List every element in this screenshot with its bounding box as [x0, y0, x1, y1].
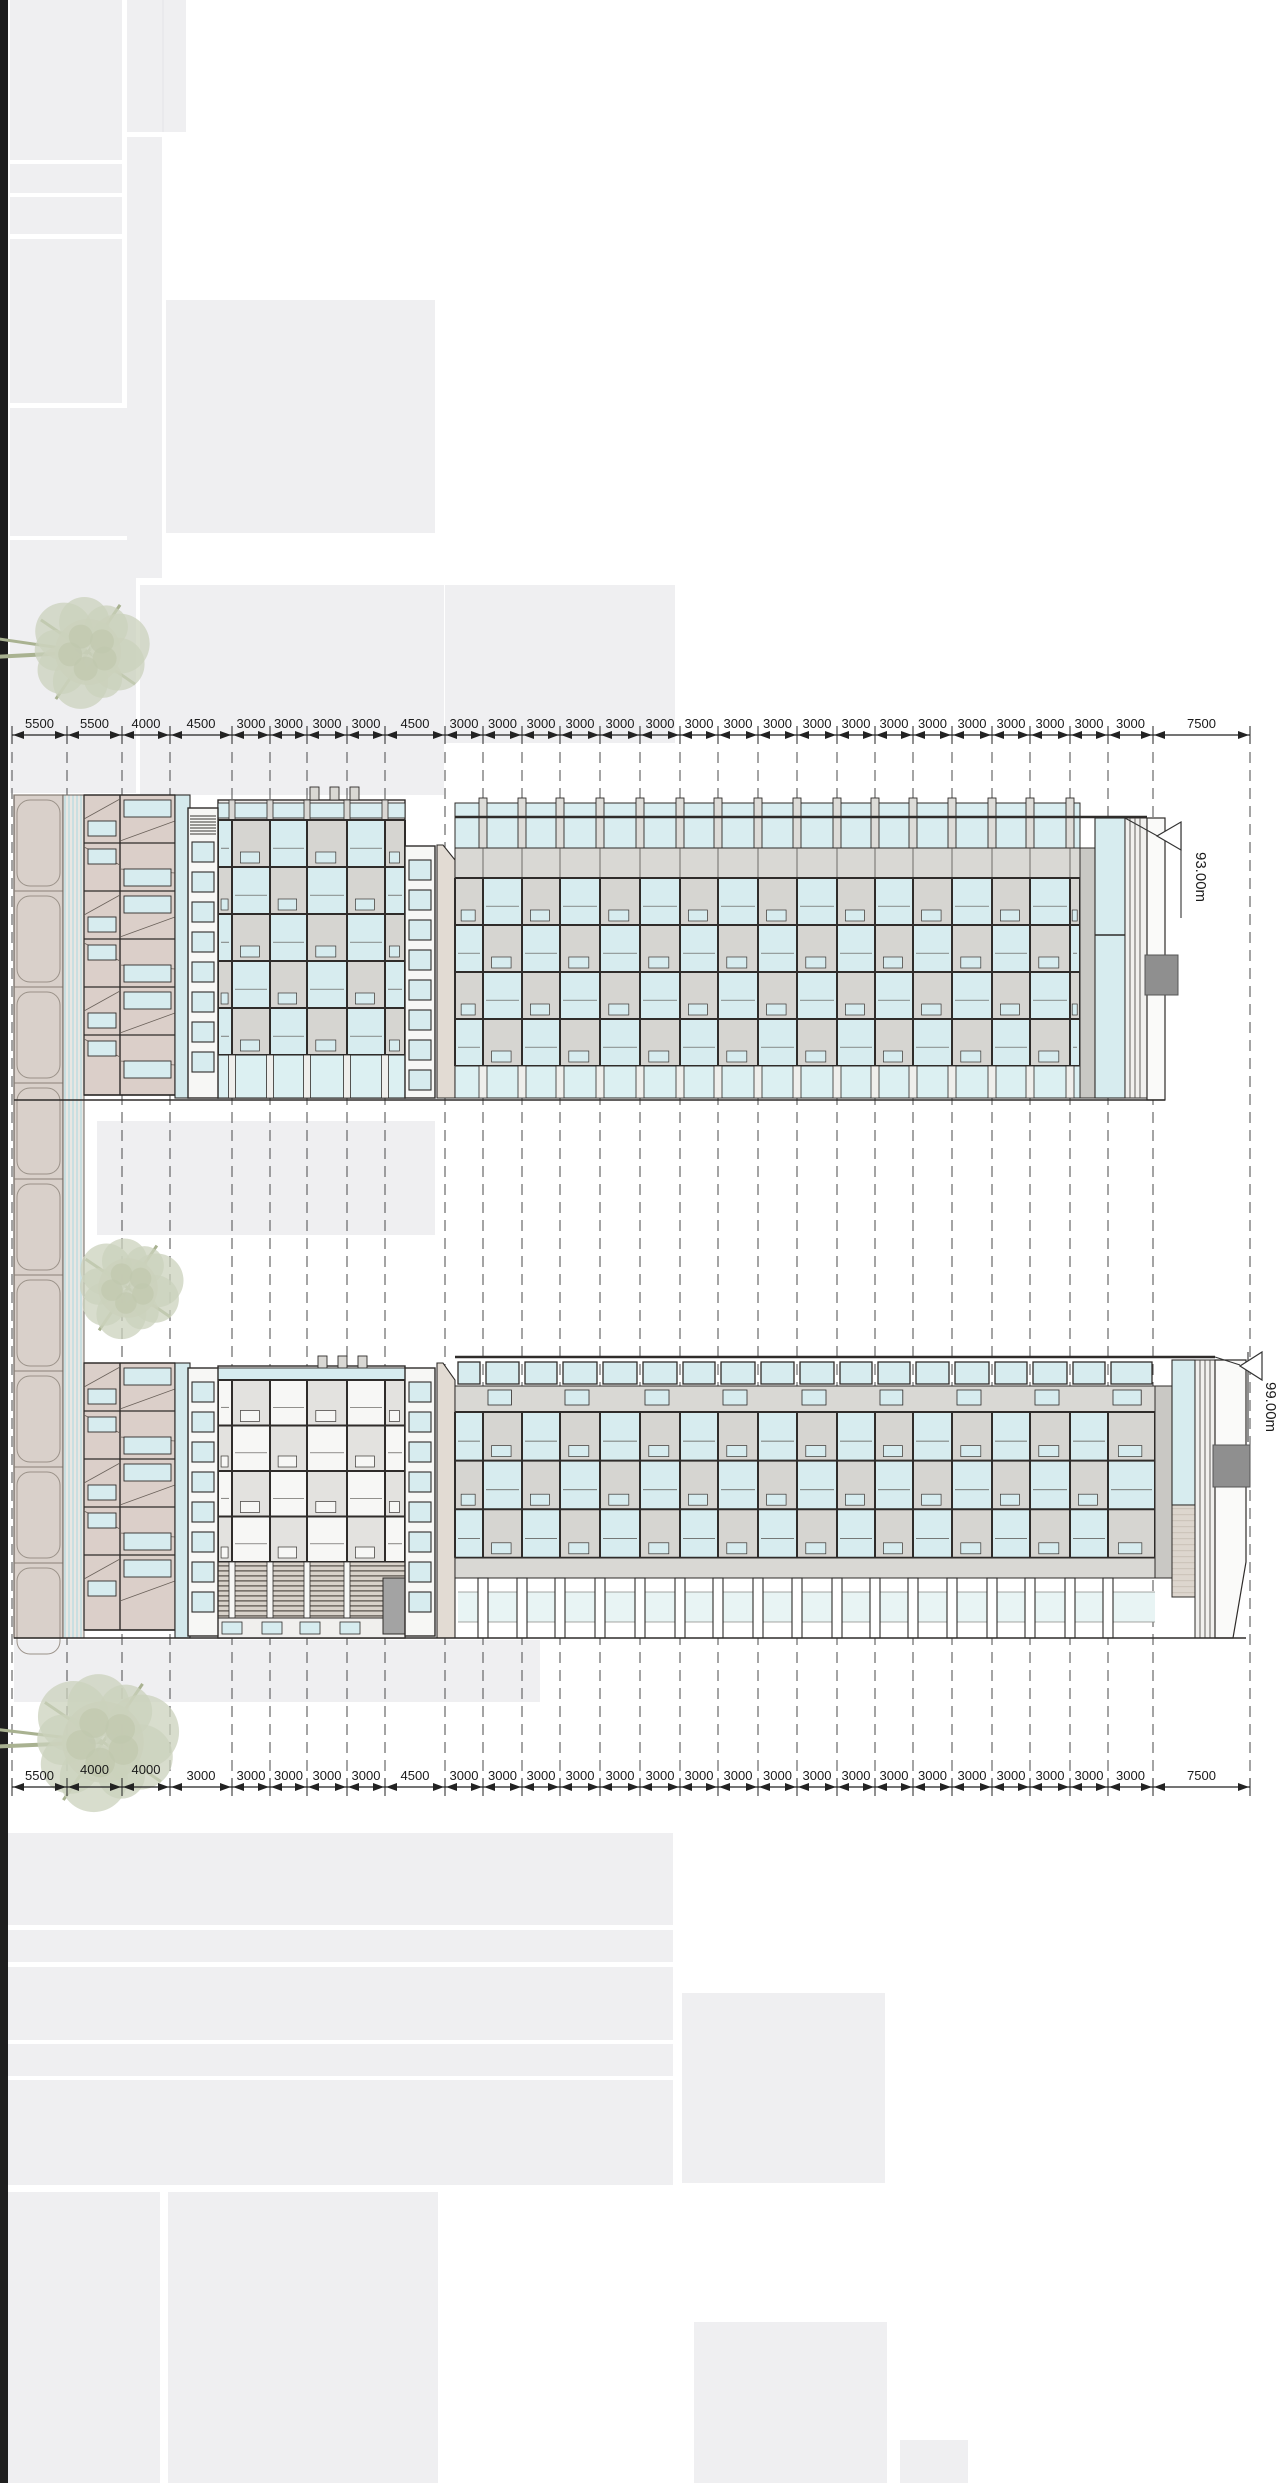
roof-fin — [1066, 798, 1074, 852]
context-block — [168, 2192, 438, 2483]
tree-canopy — [105, 1714, 135, 1744]
dimension-label: 3000 — [724, 716, 753, 731]
dimension-label: 3000 — [685, 1768, 714, 1783]
spandrel-window — [880, 1390, 903, 1405]
facade-cell — [680, 1509, 718, 1558]
facade-cell — [1030, 972, 1070, 1019]
facade-window — [316, 852, 336, 863]
facade-window — [1039, 1051, 1059, 1062]
facade-window — [530, 1494, 549, 1505]
roof-stub — [350, 787, 359, 800]
facade-cell — [218, 1008, 232, 1055]
facade-window — [806, 1446, 826, 1457]
dimension-label: 3000 — [724, 1768, 753, 1783]
facade-cell — [385, 1426, 405, 1472]
facade-cell — [992, 925, 1030, 972]
dimension-label: 3000 — [313, 716, 342, 731]
facade-window — [727, 1051, 747, 1062]
roof-stub — [338, 1356, 347, 1369]
facade-cell — [347, 914, 385, 961]
facade-cell — [680, 1412, 718, 1461]
facade-window — [1078, 1494, 1097, 1505]
context-block — [8, 2080, 673, 2185]
facade-cell — [600, 1019, 640, 1066]
textured-panel-strip — [14, 795, 63, 1638]
facade-cell — [560, 1461, 600, 1510]
roof-fin — [596, 798, 604, 852]
roof-stub — [330, 787, 339, 800]
clerestory-band — [218, 1368, 405, 1380]
dimension-label: 3000 — [237, 716, 266, 731]
facade-window — [355, 1456, 374, 1467]
piloti — [1025, 1578, 1035, 1638]
dimension-label: 3000 — [450, 1768, 479, 1783]
oriel-window — [88, 1041, 116, 1056]
facade-window — [278, 899, 297, 910]
ground-pier — [833, 1066, 841, 1098]
dimension-label: 3000 — [958, 1768, 987, 1783]
dimension-label: 3000 — [1116, 1768, 1145, 1783]
facade-window — [316, 1411, 336, 1422]
facade-cell — [522, 1412, 560, 1461]
dimension-label: 4000 — [132, 716, 161, 731]
spandrel-band — [455, 848, 1080, 878]
facade-window — [922, 1494, 942, 1505]
dimension-label: 3000 — [527, 716, 556, 731]
ground-pier — [229, 1055, 236, 1098]
roof-glass-band — [455, 803, 1080, 848]
tower-window — [192, 1502, 214, 1522]
tower-window — [192, 1472, 214, 1492]
facade-window — [922, 1004, 942, 1015]
context-block — [900, 2440, 968, 2483]
dimension-label: 3000 — [763, 1768, 792, 1783]
roof-fin — [988, 798, 996, 852]
piloti — [870, 1578, 880, 1638]
tower-window — [192, 1412, 214, 1432]
piloti — [1103, 1578, 1113, 1638]
dimension-label: 3000 — [685, 716, 714, 731]
spandrel-window — [1035, 1390, 1059, 1405]
dimension-label: 3000 — [842, 1768, 871, 1783]
ground-pier — [793, 1066, 801, 1098]
dimension-label: 3000 — [488, 716, 517, 731]
ground-pier — [344, 1055, 351, 1098]
tower-window — [192, 902, 214, 922]
clerestory-cell — [761, 1362, 794, 1384]
facade-cell — [1108, 1461, 1155, 1510]
clerestory-cell — [1033, 1362, 1067, 1384]
piloti — [555, 1578, 565, 1638]
tree-canopy — [90, 629, 114, 653]
facade-cell — [952, 972, 992, 1019]
roof-fin — [948, 798, 956, 852]
facade-cell — [758, 1509, 797, 1558]
facade-cell — [600, 925, 640, 972]
clerestory-cell — [1073, 1362, 1105, 1384]
spandrel-window — [802, 1390, 826, 1405]
oriel-window — [88, 1581, 116, 1596]
facade-cell — [640, 878, 680, 925]
oriel-window — [124, 869, 171, 886]
facade-cell — [758, 1412, 797, 1461]
piloti — [987, 1578, 997, 1638]
context-block — [127, 0, 186, 132]
ground-pier — [1066, 1066, 1074, 1098]
oriel-window — [124, 992, 171, 1009]
facade-window — [1118, 1446, 1142, 1457]
roof-fin — [1026, 798, 1034, 852]
facade-window — [355, 899, 374, 910]
roof-fin — [676, 798, 684, 852]
ground-pier — [479, 1066, 487, 1098]
clerestory-cell — [683, 1362, 715, 1384]
facade-window — [389, 1040, 399, 1051]
clerestory-cell — [916, 1362, 949, 1384]
ground-glazing — [455, 1066, 1080, 1098]
tower-window — [409, 1010, 431, 1030]
dimension-label: 3000 — [313, 1768, 342, 1783]
facade-window — [389, 1411, 399, 1422]
facade-cell — [307, 1517, 347, 1563]
ground-pier — [754, 1066, 762, 1098]
tree-canopy — [79, 1708, 109, 1738]
roof-fin — [636, 798, 644, 852]
spandrel-window — [957, 1390, 981, 1405]
clerestory-band — [218, 803, 405, 818]
ground-pier — [596, 1066, 604, 1098]
facade-cell — [1070, 1509, 1108, 1558]
ground-pier — [518, 1066, 526, 1098]
oriel-window — [88, 821, 116, 836]
roof-fin — [556, 798, 564, 852]
facade-cell — [875, 878, 913, 925]
parapet-fin — [229, 800, 235, 820]
facade-cell — [837, 1019, 875, 1066]
facade-cell — [455, 1412, 483, 1461]
facade-window — [355, 993, 374, 1004]
context-block — [10, 408, 136, 536]
dimension-label: 5500 — [25, 716, 54, 731]
roof-fin — [793, 798, 801, 852]
clerestory-cell — [486, 1362, 519, 1384]
tower-window — [192, 932, 214, 952]
dimension-label: 3000 — [566, 716, 595, 731]
facade-window — [845, 1004, 864, 1015]
oriel-window — [88, 849, 116, 864]
ground-pier — [676, 1066, 684, 1098]
facade-window — [649, 1446, 669, 1457]
facade-window — [649, 957, 669, 968]
piloti — [713, 1578, 723, 1638]
facade-window — [569, 1543, 589, 1554]
facade-cell — [218, 820, 232, 867]
facade-window — [806, 1543, 826, 1554]
oriel-window — [124, 1437, 171, 1454]
transfer-band — [455, 1558, 1155, 1578]
facade-window — [492, 1446, 512, 1457]
roof-fin — [754, 798, 762, 852]
facade-window — [1118, 1543, 1142, 1554]
facade-cell — [455, 1019, 483, 1066]
ground-pier — [304, 1055, 311, 1098]
facade-cell — [385, 1517, 405, 1563]
facade-cell — [270, 820, 307, 867]
facade-cell — [1030, 1461, 1070, 1510]
facade-window — [1000, 1494, 1019, 1505]
facade-cell — [718, 972, 758, 1019]
facade-window — [240, 1502, 259, 1513]
facade-window — [240, 1040, 259, 1051]
facade-window — [461, 1494, 475, 1505]
level-label-99: 99.00m — [1262, 1382, 1279, 1432]
roof-fin — [479, 798, 487, 852]
spandrel-window — [1113, 1390, 1141, 1405]
facade-cell — [797, 878, 837, 925]
roof-fin — [909, 798, 917, 852]
context-block — [10, 197, 122, 234]
dimension-label: 4000 — [132, 1762, 161, 1777]
facade-window — [727, 1446, 747, 1457]
ground-pier — [714, 1066, 722, 1098]
tower-window — [192, 842, 214, 862]
roof-fin — [833, 798, 841, 852]
clerestory-cell — [878, 1362, 910, 1384]
clerestory-cell — [840, 1362, 872, 1384]
lower-building-elevation — [14, 1356, 1250, 1638]
facade-window — [1000, 1004, 1019, 1015]
facade-cell — [218, 1471, 232, 1517]
facade-cell — [640, 1461, 680, 1510]
ground-pier — [948, 1066, 956, 1098]
parapet-fin — [267, 800, 273, 820]
tower-window — [409, 1442, 431, 1462]
ground-pier — [988, 1066, 996, 1098]
facade-cell — [483, 972, 522, 1019]
tower-window — [192, 1442, 214, 1462]
piloti — [478, 1578, 488, 1638]
facade-window — [609, 1004, 629, 1015]
facade-cell — [347, 1471, 385, 1517]
clerestory-cell — [995, 1362, 1027, 1384]
tower-window — [192, 1052, 214, 1072]
facade-cell — [385, 961, 405, 1008]
end-glazing — [1172, 1360, 1195, 1505]
context-block — [694, 2322, 887, 2483]
tower-window — [409, 980, 431, 1000]
facade-cell — [837, 925, 875, 972]
dimension-label: 3000 — [187, 1768, 216, 1783]
ground-pier — [267, 1055, 274, 1098]
facade-window — [688, 910, 707, 921]
spandrel-window — [723, 1390, 747, 1405]
context-block — [140, 585, 444, 795]
dimension-label: 3000 — [997, 716, 1026, 731]
piloti — [832, 1578, 842, 1638]
base-window — [340, 1622, 360, 1634]
facade-cell — [992, 1412, 1030, 1461]
facade-cell — [218, 1380, 232, 1426]
glazed-stripe-strip — [63, 795, 84, 1638]
dimension-label: 4500 — [187, 716, 216, 731]
dimension-label: 3000 — [606, 716, 635, 731]
tower-window — [192, 992, 214, 1012]
oriel-window — [88, 917, 116, 932]
facade-cell — [522, 925, 560, 972]
facade-window — [278, 1456, 297, 1467]
facade-cell — [797, 972, 837, 1019]
foreground-section-strip — [14, 795, 84, 1654]
context-block — [8, 2192, 160, 2483]
end-pier — [1155, 1386, 1172, 1578]
ground-pier — [382, 1055, 389, 1098]
oriel-window — [88, 1485, 116, 1500]
level-label-93: 93.00m — [1192, 852, 1209, 902]
ribbed-edge — [1125, 818, 1147, 1098]
facade-cell — [758, 1019, 797, 1066]
facade-window — [688, 1004, 707, 1015]
oriel-window — [88, 1389, 116, 1404]
base-window — [262, 1622, 282, 1634]
facade-cell — [560, 878, 600, 925]
facade-cell — [307, 961, 347, 1008]
rooftop-box — [1145, 955, 1178, 995]
dimension-label: 3000 — [918, 716, 947, 731]
facade-cell — [600, 1509, 640, 1558]
facade-window — [492, 957, 512, 968]
clerestory-cell — [525, 1362, 557, 1384]
context-block — [8, 2044, 673, 2076]
facade-window — [649, 1543, 669, 1554]
facade-cell — [875, 972, 913, 1019]
clerestory-cell — [643, 1362, 677, 1384]
context-block — [10, 239, 122, 403]
facade-cell — [1070, 1412, 1108, 1461]
tower-window — [409, 920, 431, 940]
dimension-label: 3000 — [1036, 716, 1065, 731]
piloti — [1065, 1578, 1075, 1638]
end-glazing — [1095, 818, 1125, 1098]
facade-cell — [522, 1509, 560, 1558]
facade-window — [609, 1494, 629, 1505]
parapet-fin — [382, 800, 388, 820]
dimension-label: 3000 — [880, 716, 909, 731]
tree-canopy — [69, 625, 93, 649]
dimension-label: 7500 — [1187, 1768, 1216, 1783]
dimension-label: 4000 — [80, 1762, 109, 1777]
ground-pier — [556, 1066, 564, 1098]
facade-window — [461, 1004, 475, 1015]
facade-window — [221, 1456, 228, 1467]
facade-cell — [232, 961, 270, 1008]
facade-cell — [307, 1426, 347, 1472]
facade-window — [316, 946, 336, 957]
context-block — [8, 1833, 673, 1925]
piloti — [908, 1578, 918, 1638]
dimension-label: 3000 — [646, 716, 675, 731]
dimension-label: 3000 — [274, 716, 303, 731]
facade-window — [221, 993, 228, 1004]
tower-window — [192, 1532, 214, 1552]
facade-window — [569, 957, 589, 968]
facade-cell — [913, 1412, 952, 1461]
context-block — [10, 0, 122, 160]
dimension-label: 4500 — [401, 1768, 430, 1783]
facade-window — [492, 1543, 512, 1554]
facade-window — [240, 1411, 259, 1422]
context-block — [10, 164, 122, 193]
elevation-drawing-page: 5500550040004500300030003000300045003000… — [0, 0, 1280, 2483]
angled-edge-wall — [437, 1363, 455, 1638]
facade-cell — [952, 878, 992, 925]
tower-window — [409, 1562, 431, 1582]
dimension-label: 3000 — [527, 1768, 556, 1783]
base-window — [300, 1622, 320, 1634]
roof-fin — [518, 798, 526, 852]
upper-building-elevation — [14, 787, 1178, 1100]
context-block — [8, 1967, 673, 2040]
facade-window — [961, 1543, 981, 1554]
context-block — [8, 1930, 673, 1962]
facade-cell — [837, 1509, 875, 1558]
spandrel-window — [565, 1390, 589, 1405]
roof-fin — [871, 798, 879, 852]
facade-cell — [913, 925, 952, 972]
dimension-label: 3000 — [606, 1768, 635, 1783]
roof-stub — [358, 1356, 367, 1369]
tower-window — [409, 1040, 431, 1060]
tower-window — [192, 1592, 214, 1612]
facade-window — [389, 1502, 399, 1513]
facade-window — [767, 1494, 787, 1505]
facade-cell — [600, 1412, 640, 1461]
tower-window — [409, 1502, 431, 1522]
facade-window — [883, 1446, 902, 1457]
facade-window — [688, 1494, 707, 1505]
oriel-window — [124, 896, 171, 913]
facade-window — [649, 1051, 669, 1062]
tower-window — [409, 1592, 431, 1612]
dimension-label: 3000 — [450, 716, 479, 731]
oriel-window — [124, 1464, 171, 1481]
facade-cell — [270, 1471, 307, 1517]
tower-window — [192, 1562, 214, 1582]
facade-cell — [307, 867, 347, 914]
piloti — [947, 1578, 957, 1638]
context-block — [682, 1993, 885, 2183]
clerestory-cell — [721, 1362, 755, 1384]
facade-cell — [270, 1380, 307, 1426]
tree-canopy — [111, 1263, 133, 1285]
facade-window — [727, 1543, 747, 1554]
dimension-label: 3000 — [646, 1768, 675, 1783]
roof-stub — [310, 787, 319, 800]
rooftop-box — [1213, 1445, 1250, 1487]
dimension-label: 3000 — [1116, 716, 1145, 731]
end-pier — [1080, 848, 1095, 1098]
facade-window — [806, 1051, 826, 1062]
dimension-label: 3000 — [274, 1768, 303, 1783]
piloti — [517, 1578, 527, 1638]
facade-window — [1000, 910, 1019, 921]
facade-cell — [218, 914, 232, 961]
piloti — [635, 1578, 645, 1638]
facade-cell — [718, 878, 758, 925]
spandrel-window — [488, 1390, 511, 1405]
dimension-label: 3000 — [352, 1768, 381, 1783]
facade-window — [961, 1446, 981, 1457]
ground-pier — [909, 1066, 917, 1098]
